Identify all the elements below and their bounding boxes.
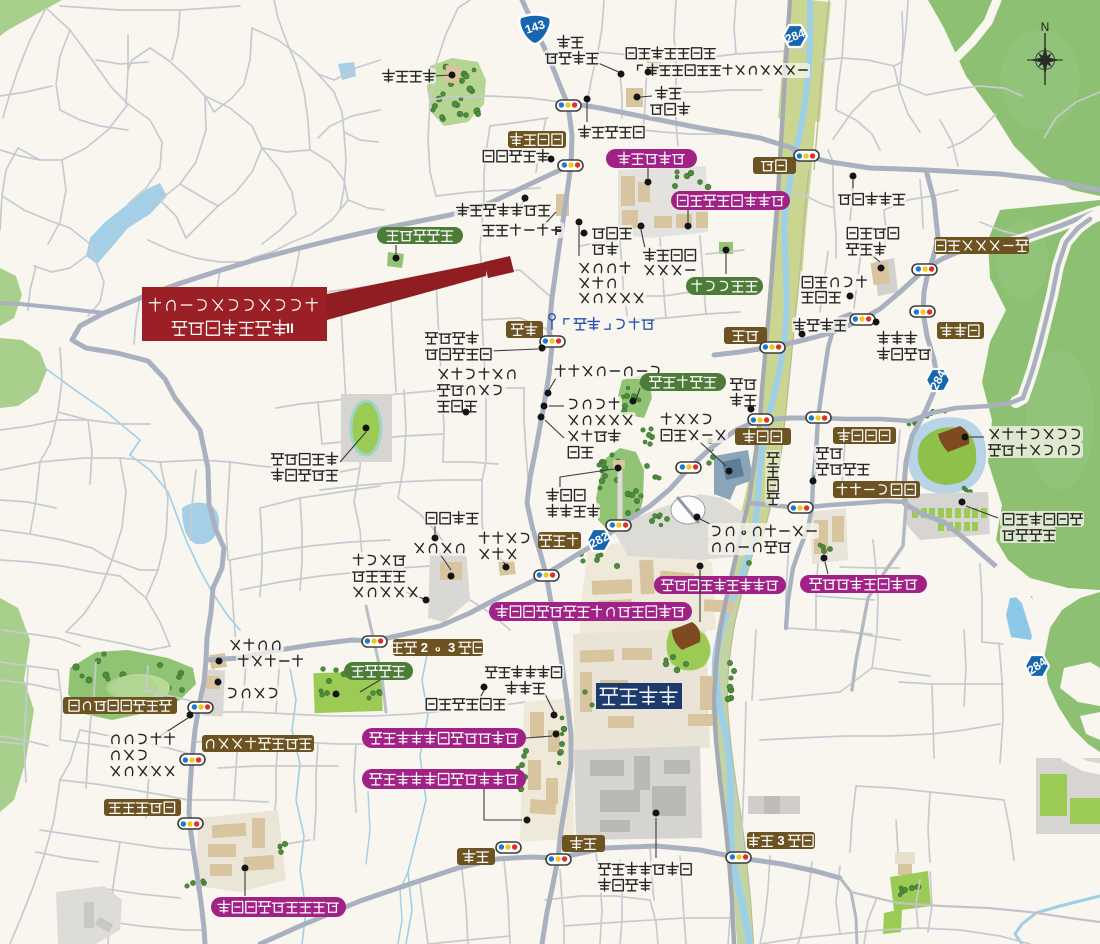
svg-text:2: 2	[421, 640, 428, 655]
svg-text:3: 3	[777, 833, 784, 848]
svg-text:F: F	[554, 224, 561, 238]
svg-text:II: II	[286, 320, 294, 336]
svg-text:N: N	[1041, 20, 1050, 34]
svg-text:3: 3	[448, 640, 455, 655]
